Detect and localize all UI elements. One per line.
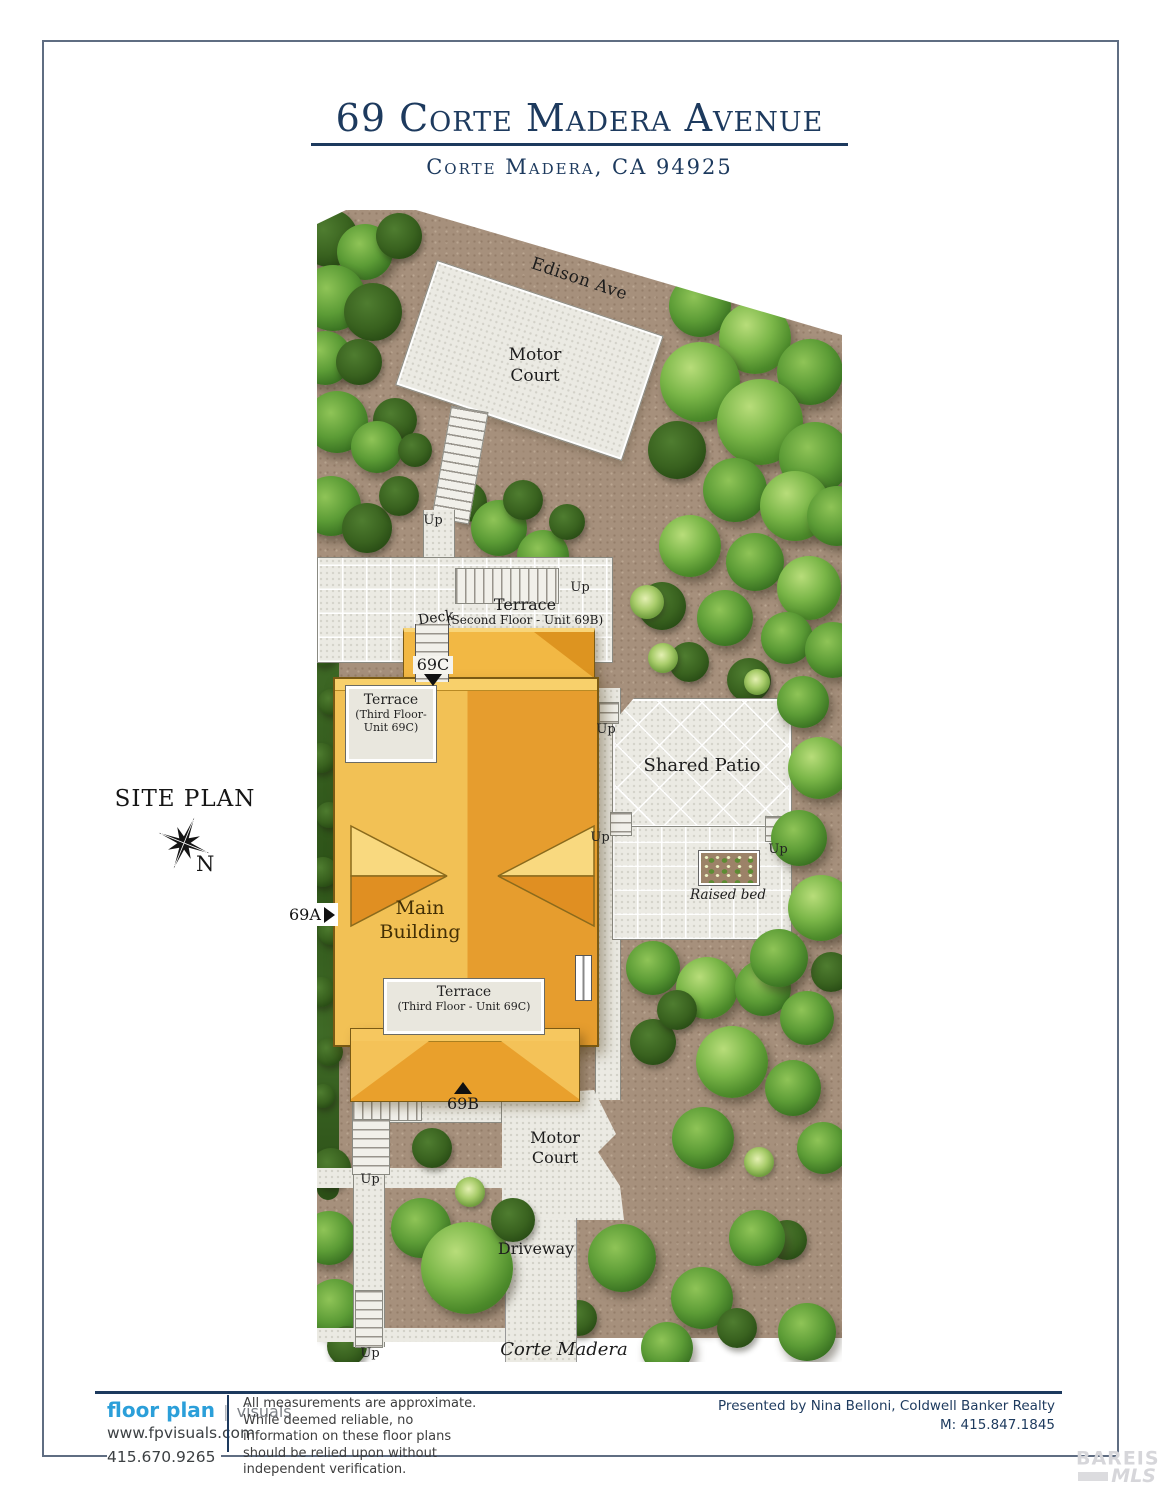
tree-icon (703, 458, 767, 522)
up-label: Up (563, 580, 597, 595)
tree-icon (379, 476, 419, 516)
tree-icon (726, 533, 784, 591)
up-label: Up (589, 722, 623, 737)
unit-69b-marker: 69B (435, 1082, 491, 1113)
tree-icon (672, 1107, 734, 1169)
tree-icon (778, 1303, 836, 1361)
up-label: Up (353, 1346, 387, 1361)
palm-icon (455, 1177, 485, 1207)
palm-icon (648, 643, 678, 673)
tree-icon (771, 810, 827, 866)
site-plan-heading: SITE PLAN (105, 786, 265, 812)
tree-icon (750, 929, 808, 987)
corte-madera-ave-label: Corte Madera Ave (481, 1340, 647, 1362)
tree-icon (588, 1224, 656, 1292)
tree-icon (797, 1122, 842, 1174)
tree-icon (412, 1128, 452, 1168)
terrace-3f-upper-sub1: (Third Floor- (346, 708, 436, 721)
up-label: Up (583, 830, 617, 845)
brand-phone: 415.670.9265 (107, 1448, 221, 1466)
arrow-down-icon (424, 674, 442, 686)
brand-website: www.fpvisuals.com (107, 1424, 255, 1442)
tree-icon (398, 433, 432, 467)
shared-patio-label: Shared Patio (637, 756, 767, 777)
unit-69a-label: 69A (289, 905, 321, 924)
terrace-3f-upper-sub2: Unit 69C) (346, 721, 436, 734)
header: 69 Corte Madera Avenue Corte Madera, CA … (0, 98, 1159, 179)
arrow-up-icon (454, 1082, 472, 1094)
unit-69c-marker: 69C (413, 656, 453, 686)
roof-facet (489, 1041, 579, 1099)
roof-facet (514, 632, 594, 682)
tree-icon (788, 737, 842, 799)
brand-primary: floor plan (107, 1398, 215, 1422)
tree-icon (717, 1308, 757, 1348)
terrace-2f-label: Terrace (Second Floor - Unit 69B) (445, 596, 605, 628)
up-label: Up (761, 842, 795, 857)
disclaimer-text: All measurements are approximate. While … (243, 1396, 485, 1479)
unit-69a-marker: 69A (286, 903, 338, 926)
tree-icon (376, 213, 422, 259)
roof-pyramid-right (495, 823, 597, 933)
terrace-3f-lower-title: Terrace (384, 984, 544, 1000)
bareis-mls-watermark: BAREIS® MLS (1076, 1446, 1156, 1485)
up-label: Up (413, 513, 453, 528)
motor-court-bottom-label: Motor Court (523, 1128, 587, 1168)
tree-icon (659, 515, 721, 577)
tree-icon (336, 339, 382, 385)
tree-icon (657, 990, 697, 1030)
tree-icon (648, 421, 706, 479)
mobile-line: M: 415.847.1845 (700, 1416, 1055, 1435)
terrace-3f-lower-sub: (Third Floor - Unit 69C) (384, 1000, 544, 1013)
title-rule (311, 143, 848, 146)
site-plan-canvas: Edison Ave Motor Court Up Deck Up Terrac… (317, 210, 842, 1362)
palm-icon (630, 585, 664, 619)
footer-divider (227, 1395, 229, 1452)
palm-icon (744, 1147, 774, 1177)
up-label: Up (353, 1172, 387, 1187)
terrace-3f-upper-title: Terrace (346, 692, 436, 708)
arrow-right-icon (324, 907, 335, 923)
footer-rule (95, 1391, 1062, 1394)
driveway-label: Driveway (493, 1240, 579, 1258)
terrace-2f-title: Terrace (445, 596, 605, 614)
watermark-bar (1078, 1472, 1108, 1481)
tree-icon (777, 676, 829, 728)
raised-bed (698, 850, 760, 886)
presented-by-line: Presented by Nina Belloni, Coldwell Bank… (700, 1397, 1055, 1416)
tree-icon (696, 1026, 768, 1098)
tree-icon (765, 1060, 821, 1116)
tree-icon (344, 283, 402, 341)
stairs-patio-north (599, 702, 619, 724)
stairs-south-lower (352, 1119, 390, 1175)
tree-icon (729, 1210, 785, 1266)
tree-icon (549, 504, 585, 540)
page: 69 Corte Madera Avenue Corte Madera, CA … (0, 0, 1159, 1499)
tree-icon (351, 421, 403, 473)
tree-icon (780, 991, 834, 1045)
terrace-3f-box-lower: Terrace (Third Floor - Unit 69C) (383, 978, 545, 1035)
motor-court-top-label: Motor Court (503, 345, 567, 387)
terrace-2f-sub: (Second Floor - Unit 69B) (445, 614, 605, 628)
tree-icon (697, 590, 753, 646)
terrace-3f-box-upper: Terrace (Third Floor- Unit 69C) (345, 685, 437, 763)
tree-icon (626, 941, 680, 995)
door-icon (575, 955, 592, 1001)
page-title: 69 Corte Madera Avenue (0, 98, 1159, 138)
unit-69b-label: 69B (435, 1095, 491, 1113)
compass-north-label: N (196, 852, 214, 876)
presented-by: Presented by Nina Belloni, Coldwell Bank… (700, 1397, 1055, 1435)
watermark-mls: MLS (1111, 1467, 1156, 1485)
stairs-street (355, 1290, 383, 1348)
tree-icon (491, 1198, 535, 1242)
main-building-label: Main Building (362, 896, 478, 944)
tree-icon (777, 556, 841, 620)
roof-facet (351, 1041, 441, 1099)
raised-bed-label: Raised bed (668, 888, 788, 904)
palm-icon (744, 669, 770, 695)
sidewalk-band (317, 1328, 505, 1342)
page-subtitle: Corte Madera, CA 94925 (0, 155, 1159, 179)
tree-icon (503, 480, 543, 520)
unit-69c-label: 69C (413, 656, 453, 674)
